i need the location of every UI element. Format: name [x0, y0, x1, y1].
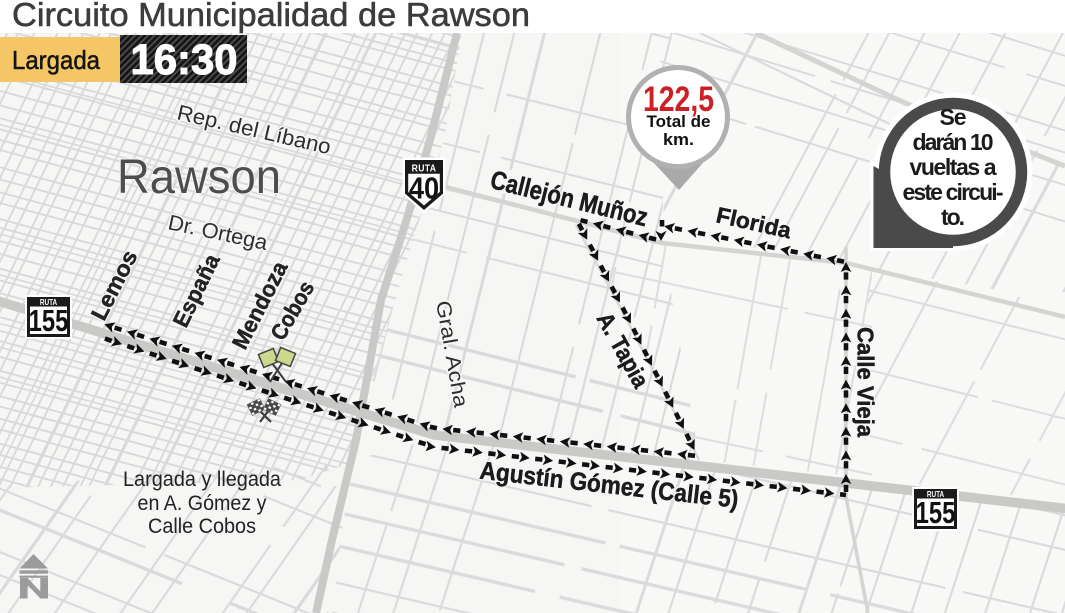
svg-text:Calle Cobos: Calle Cobos [148, 514, 256, 538]
svg-text:vueltas a: vueltas a [910, 154, 997, 180]
svg-text:km.: km. [663, 130, 694, 149]
svg-text:to.: to. [941, 204, 965, 230]
svg-text:darán 10: darán 10 [913, 129, 994, 155]
svg-text:155: 155 [29, 303, 69, 338]
svg-text:Se: Se [940, 104, 967, 130]
svg-text:16:30: 16:30 [131, 36, 238, 84]
svg-text:en A. Gómez y: en A. Gómez y [138, 491, 267, 515]
svg-text:este circui-: este circui- [903, 179, 1004, 205]
svg-text:Circuito Municipalidad de Raws: Circuito Municipalidad de Rawson [12, 0, 530, 33]
svg-text:Rawson: Rawson [117, 151, 281, 204]
svg-text:Total de: Total de [647, 112, 711, 131]
svg-text:40: 40 [409, 172, 439, 206]
svg-text:Largada y llegada: Largada y llegada [123, 467, 281, 491]
svg-text:Calle Vieja: Calle Vieja [853, 327, 879, 437]
svg-text:Largada: Largada [12, 45, 100, 75]
svg-text:155: 155 [916, 495, 956, 530]
